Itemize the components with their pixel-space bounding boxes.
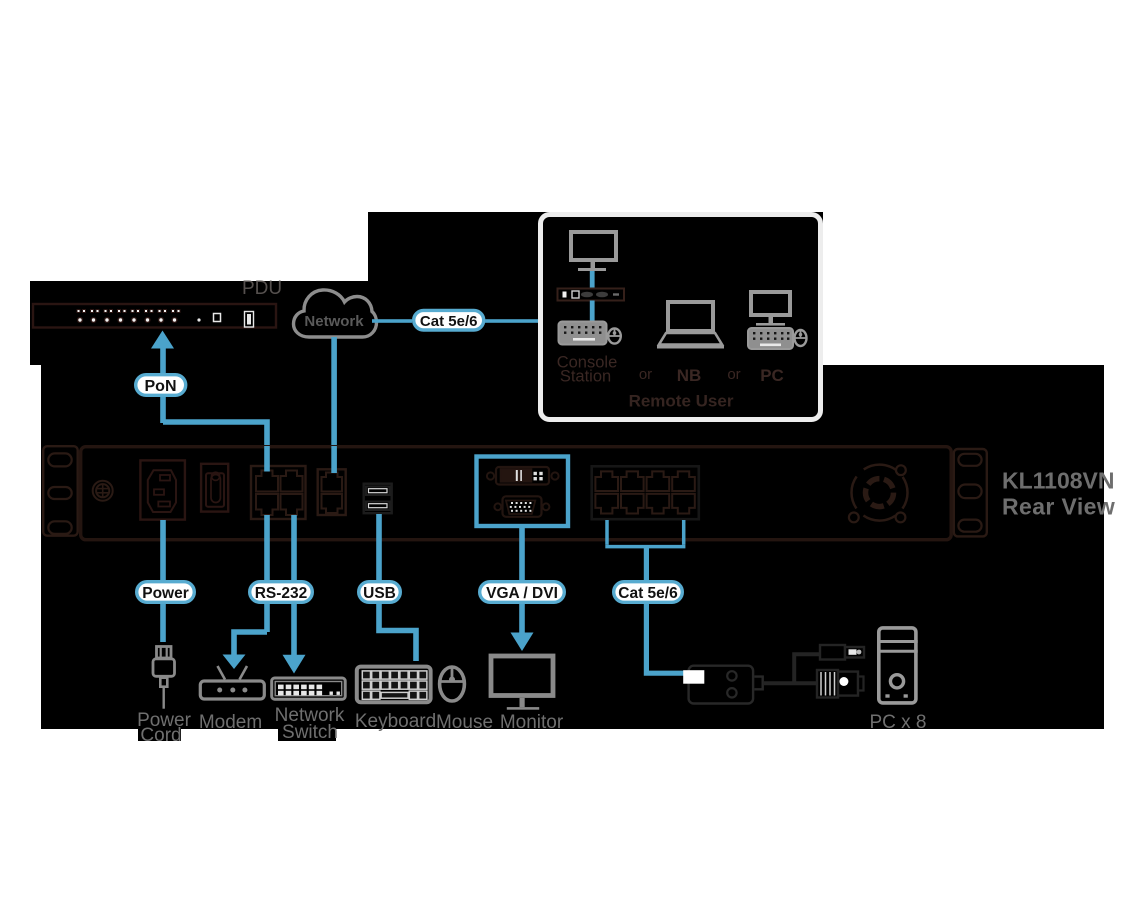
svg-text:USB: USB bbox=[363, 585, 396, 602]
svg-text:RS-232: RS-232 bbox=[255, 585, 308, 602]
svg-text:Cat 5e/6: Cat 5e/6 bbox=[618, 585, 678, 602]
svg-text:Cat 5e/6: Cat 5e/6 bbox=[420, 313, 478, 330]
svg-text:Power: Power bbox=[142, 585, 189, 602]
svg-text:PC x 8: PC x 8 bbox=[869, 712, 926, 733]
svg-text:Network: Network bbox=[304, 313, 364, 330]
svg-text:PDU: PDU bbox=[242, 278, 282, 299]
svg-text:PC: PC bbox=[760, 366, 784, 385]
svg-text:Rear View: Rear View bbox=[1002, 494, 1115, 520]
svg-text:Remote User: Remote User bbox=[629, 392, 734, 411]
svg-text:Switch: Switch bbox=[282, 722, 338, 743]
svg-text:Mouse: Mouse bbox=[436, 712, 493, 733]
svg-text:Keyboard: Keyboard bbox=[355, 711, 436, 732]
svg-text:or: or bbox=[639, 366, 652, 383]
svg-text:Modem: Modem bbox=[199, 712, 262, 733]
svg-text:Cord: Cord bbox=[140, 725, 181, 746]
svg-text:Monitor: Monitor bbox=[500, 712, 564, 733]
svg-text:VGA / DVI: VGA / DVI bbox=[486, 585, 558, 602]
svg-text:KL1108VN: KL1108VN bbox=[1002, 468, 1115, 494]
svg-text:NB: NB bbox=[677, 366, 702, 385]
svg-text:Station: Station bbox=[560, 368, 611, 386]
svg-text:PoN: PoN bbox=[145, 378, 177, 395]
svg-text:or: or bbox=[727, 366, 740, 383]
